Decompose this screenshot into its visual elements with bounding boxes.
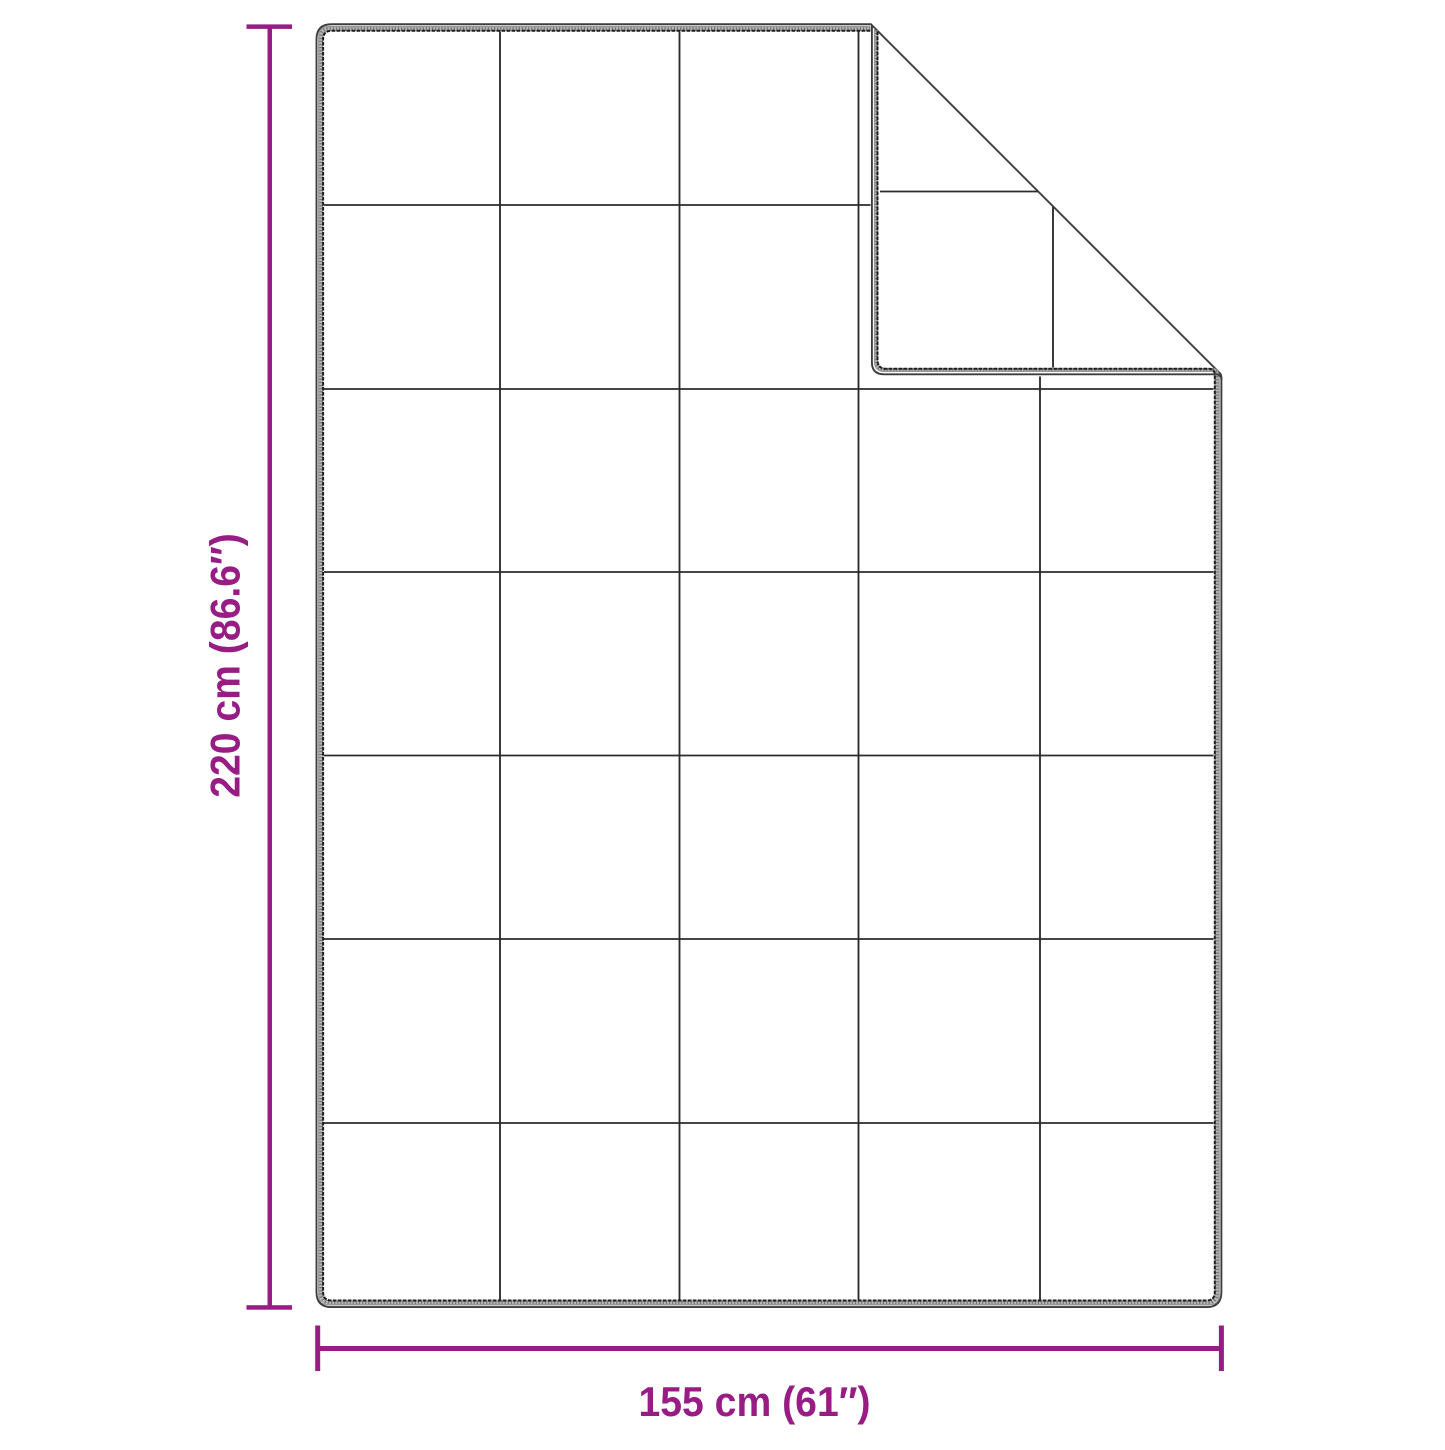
svg-text:220 cm (86.6″): 220 cm (86.6″) xyxy=(202,533,249,798)
svg-text:155 cm (61″): 155 cm (61″) xyxy=(639,1378,871,1425)
